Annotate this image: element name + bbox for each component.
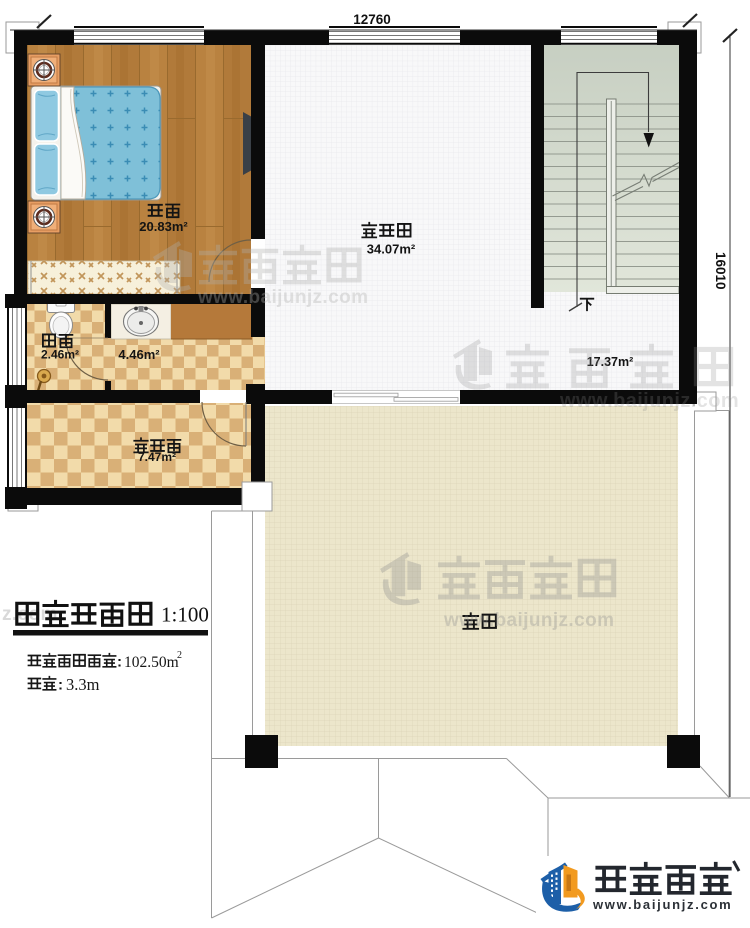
svg-text:1:100: 1:100 xyxy=(161,603,209,627)
svg-text:102.50m: 102.50m xyxy=(124,654,179,671)
svg-text::: : xyxy=(117,654,122,671)
svg-text:12760: 12760 xyxy=(353,12,391,27)
svg-text:www.baijunjz.com: www.baijunjz.com xyxy=(559,390,739,412)
svg-text:7.47m²: 7.47m² xyxy=(138,450,176,464)
svg-text:www.baijunjz.com: www.baijunjz.com xyxy=(197,287,368,308)
svg-text:16010: 16010 xyxy=(713,252,728,290)
svg-text:4.46m²: 4.46m² xyxy=(118,347,160,362)
svg-text:34.07m²: 34.07m² xyxy=(367,242,416,257)
svg-text:2: 2 xyxy=(177,650,182,661)
svg-text:www.baijunjz.com: www.baijunjz.com xyxy=(443,610,614,631)
svg-text::: : xyxy=(58,677,63,694)
svg-text:www.baijunjz.com: www.baijunjz.com xyxy=(592,897,732,912)
svg-text:3.3m: 3.3m xyxy=(66,675,100,694)
svg-text:2.46m²: 2.46m² xyxy=(41,348,79,362)
svg-text:20.83m²: 20.83m² xyxy=(139,219,188,234)
